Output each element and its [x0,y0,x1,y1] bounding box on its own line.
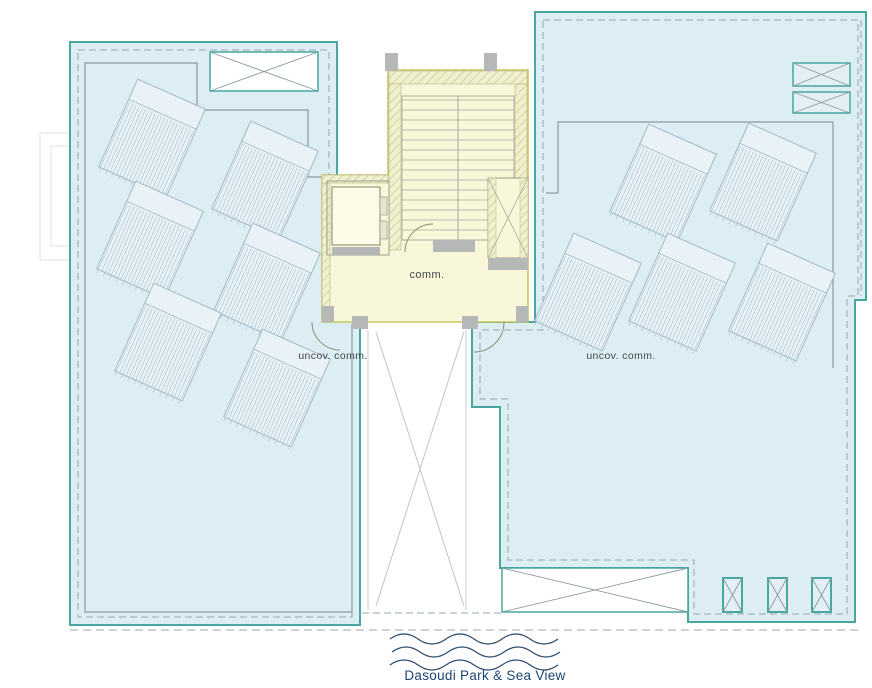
sea-wave-lines [390,634,560,670]
elevator-car [332,187,380,245]
left-terrace [70,42,360,625]
roof-vent [768,578,787,612]
core-area-label: comm. [392,269,462,281]
sea-view-caption: Dasoudi Park & Sea View [370,668,600,683]
core-wall [389,84,401,250]
roof-vent [210,52,318,91]
floor-plan-drawing [0,0,872,688]
core-wall [389,71,527,84]
roof-vent [793,92,850,113]
roof-vent [723,578,742,612]
roof-vent [812,578,831,612]
service-shaft [488,178,528,270]
left-terrace-outline [70,42,360,625]
left-terrace-label: uncov. comm. [288,350,378,362]
elevator [327,181,389,255]
floor-plan-page: comm. uncov. comm. uncov. comm. Dasoudi … [0,0,872,688]
roof-vent [502,568,688,612]
core-wall [322,175,388,183]
right-terrace-label: uncov. comm. [576,350,666,362]
roof-vent [793,63,850,86]
core-wall [322,183,330,322]
core [312,53,528,352]
